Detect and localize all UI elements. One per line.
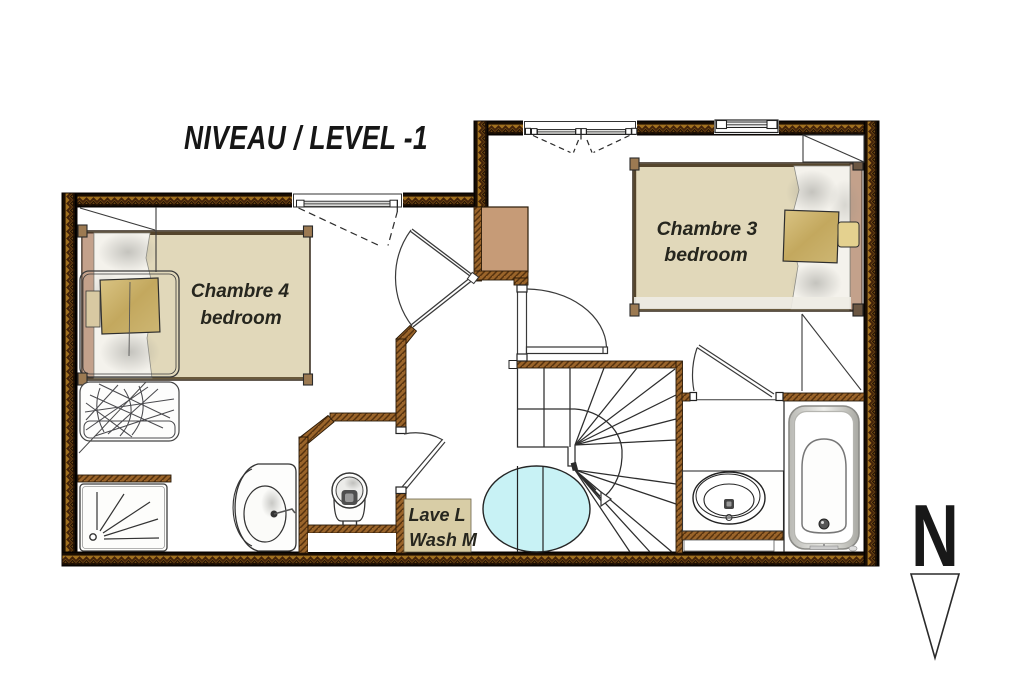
- svg-text:Lave L: Lave L: [408, 505, 465, 525]
- svg-text:Chambre 4: Chambre 4: [191, 281, 290, 302]
- svg-text:bedroom: bedroom: [664, 244, 747, 266]
- svg-text:Wash M: Wash M: [409, 530, 478, 550]
- svg-text:NIVEAU / LEVEL -1: NIVEAU / LEVEL -1: [184, 120, 428, 156]
- svg-text:bedroom: bedroom: [200, 308, 281, 329]
- svg-text:Chambre 3: Chambre 3: [657, 218, 758, 240]
- svg-text:N: N: [911, 488, 959, 585]
